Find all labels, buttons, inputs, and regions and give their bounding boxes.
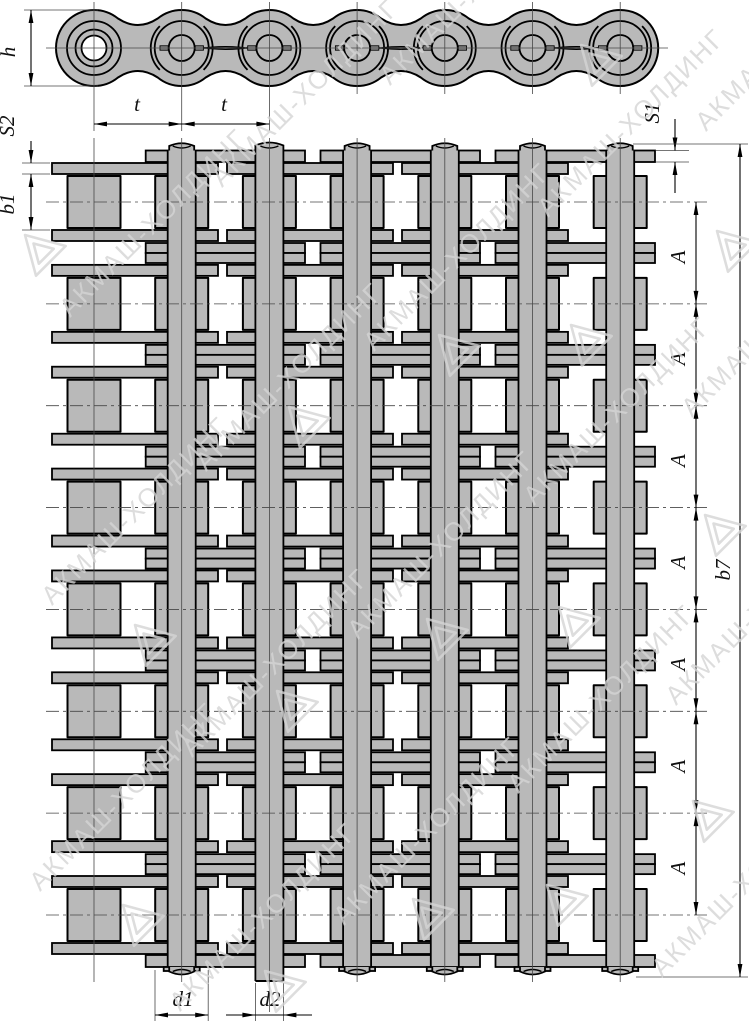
dimension-arrow — [694, 698, 699, 711]
dimension-arrow — [242, 1013, 255, 1018]
dim-label-A: A — [666, 556, 690, 571]
dim-label-A: A — [666, 760, 690, 775]
dimension-arrow — [694, 202, 699, 215]
akmash-logo-icon — [678, 786, 734, 842]
akmash-logo-icon — [690, 500, 746, 556]
dimension-arrow — [694, 711, 699, 724]
dimension-arrow — [694, 596, 699, 609]
dimension-arrow — [738, 144, 743, 157]
dim-label-t1: t — [134, 92, 141, 116]
dimension-arrow — [94, 122, 107, 127]
dimension-arrow — [673, 162, 678, 175]
dimension-arrow — [182, 122, 195, 127]
akmash-logo-icon — [702, 216, 749, 272]
dim-label-h: h — [0, 47, 20, 58]
dim-label-t2: t — [221, 92, 228, 116]
dim-label-S2: S2 — [0, 115, 19, 137]
dimension-arrow — [694, 291, 699, 304]
dimension-arrow — [694, 508, 699, 521]
dimension-arrow — [29, 10, 34, 23]
dimension-arrow — [29, 150, 34, 163]
dim-label-A: A — [666, 250, 690, 265]
dim-label-A: A — [666, 454, 690, 469]
dimension-arrow — [29, 217, 34, 230]
dimension-arrow — [694, 495, 699, 508]
dim-label-b1: b1 — [0, 194, 19, 215]
dim-label-A: A — [666, 861, 690, 876]
dim-label-b7: b7 — [711, 558, 735, 581]
dimension-arrow — [738, 964, 743, 977]
dimension-arrow — [195, 1013, 208, 1018]
dimension-arrow — [29, 73, 34, 86]
dimension-arrow — [155, 1013, 168, 1018]
chain-plan-view — [52, 143, 655, 982]
roller-chain-technical-drawing: h t t S2 b1 S1 b7 d1 d2 AAAAAAA АКМАШ-ХО… — [0, 0, 749, 1024]
dimension-arrow — [283, 1013, 296, 1018]
dimension-arrow — [169, 122, 182, 127]
